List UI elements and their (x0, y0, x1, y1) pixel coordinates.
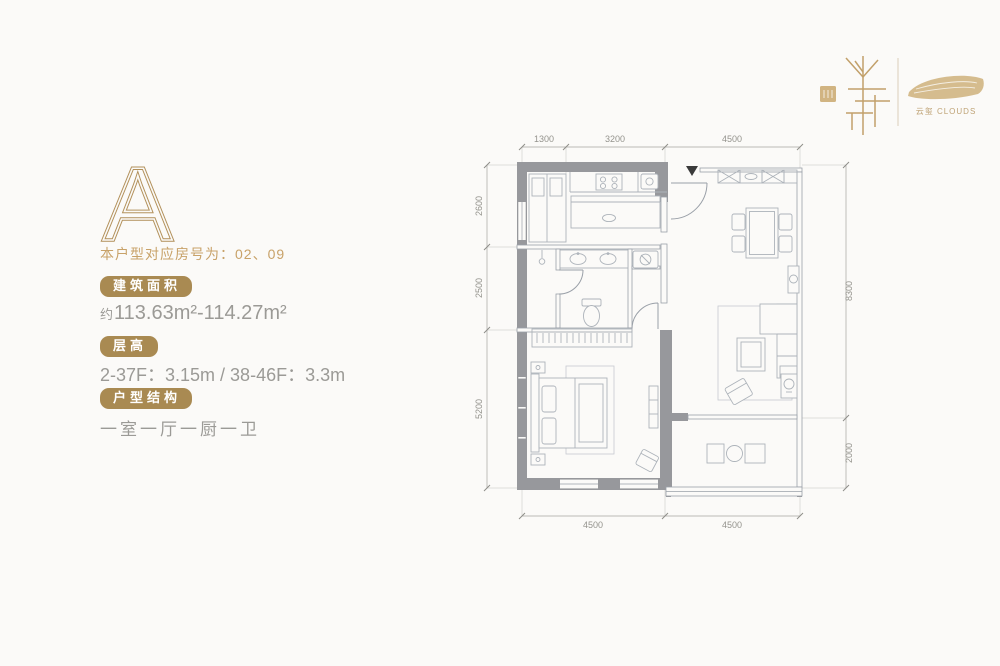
dim-top-3: 4500 (722, 134, 742, 144)
unit-letter-mark: A A (94, 148, 186, 244)
structure-badge: 户型结构 (100, 388, 192, 409)
kitchen-island (571, 196, 660, 228)
area-badge: 建筑面积 (100, 276, 192, 297)
floor-ac-unit (781, 374, 797, 398)
entrance-door (671, 183, 707, 219)
unit-letter-inner: A (103, 148, 173, 244)
balcony (707, 444, 765, 463)
bedroom-door (632, 303, 658, 329)
dining-chair (779, 214, 792, 230)
kitchen (529, 172, 667, 242)
toilet (582, 299, 601, 306)
dining-chair (732, 214, 745, 230)
dining-area (718, 170, 799, 293)
brand-caption: 云玺 CLOUDS (916, 106, 977, 116)
dim-top-2: 3200 (605, 134, 625, 144)
balcony-seat (745, 444, 765, 463)
dim-bottom-2: 4500 (722, 520, 742, 530)
dining-chair (732, 236, 745, 252)
nightstand (531, 362, 545, 373)
nightstand (531, 454, 545, 465)
kitchen-sink (641, 174, 658, 189)
dresser (649, 386, 658, 428)
floor-height-value: 2-37F：3.15m / 38-46F：3.3m (100, 361, 345, 387)
dim-top-1: 1300 (534, 134, 554, 144)
dim-left-1: 2600 (474, 196, 484, 216)
dim-bottom-1: 4500 (583, 520, 603, 530)
dim-right-2: 2000 (844, 443, 854, 463)
floorplan-page: A A 本户型对应房号为：02、09 建筑面积 约113.63m²-114.27… (0, 0, 1000, 666)
balcony-table (727, 446, 743, 462)
brand-seal-icon (820, 86, 836, 102)
entrance-arrow-icon (686, 166, 698, 176)
area-number: 113.63m²-114.27m² (114, 302, 287, 324)
area-value: 约113.63m²-114.27m² (100, 302, 287, 325)
dim-left-3: 5200 (474, 399, 484, 419)
armchair (724, 378, 753, 405)
floor-plan: 1300 3200 4500 2600 2500 5200 8300 2000 … (450, 126, 880, 551)
dining-chair (779, 236, 792, 252)
pillow (542, 418, 556, 444)
dim-left-2: 2500 (474, 278, 484, 298)
bedroom (531, 362, 659, 472)
balcony-seat (707, 444, 724, 463)
sofa-chaise (760, 304, 797, 334)
floor-height-badge: 层高 (100, 336, 158, 357)
utility-room (539, 250, 545, 264)
bed-headboard (531, 374, 539, 452)
dining-table (746, 208, 778, 258)
tall-cabinet (529, 174, 566, 242)
room-numbers-line: 本户型对应房号为：02、09 (100, 244, 285, 264)
living-room (724, 304, 797, 405)
dim-right-1: 8300 (844, 281, 854, 301)
bathroom-door (559, 270, 583, 294)
brand-brushstroke-icon (908, 76, 984, 99)
structure-value: 一室一厅一厨一卫 (100, 415, 260, 440)
brand-sprig-icon (846, 56, 890, 135)
area-prefix: 约 (100, 307, 113, 322)
stove (596, 174, 622, 190)
pillow (542, 386, 556, 412)
